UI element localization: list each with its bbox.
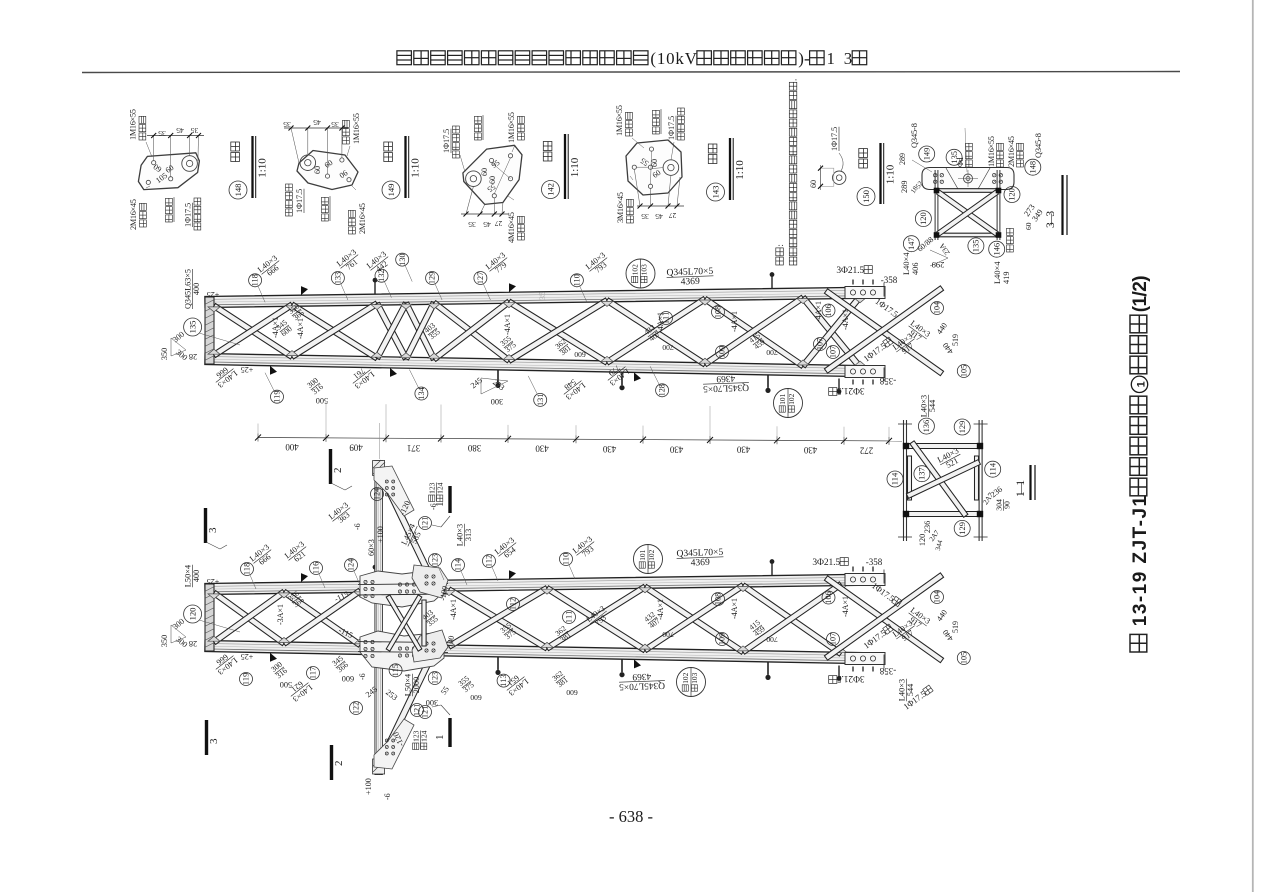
svg-text:500: 500	[316, 396, 328, 405]
svg-text:60: 60	[313, 166, 322, 174]
svg-text:110: 110	[573, 274, 582, 286]
svg-text:L40×4: L40×4	[993, 261, 1002, 284]
svg-text:148: 148	[233, 184, 243, 197]
svg-text:111: 111	[662, 312, 671, 324]
svg-text:1M16×55: 1M16×55	[507, 112, 516, 143]
svg-text:-4A×1: -4A×1	[841, 596, 850, 617]
svg-text:45: 45	[313, 118, 321, 127]
svg-text:1:10: 1:10	[569, 157, 581, 177]
svg-text:127: 127	[476, 272, 485, 284]
svg-text:35: 35	[331, 120, 339, 129]
svg-text:35: 35	[641, 212, 649, 221]
svg-text:149: 149	[922, 148, 931, 161]
svg-text:-358: -358	[879, 666, 896, 676]
svg-text:.: .	[789, 79, 799, 81]
svg-text:149: 149	[386, 184, 396, 197]
svg-text:700: 700	[662, 630, 674, 639]
svg-text:2: 2	[333, 761, 345, 767]
svg-text:129: 129	[958, 421, 967, 434]
svg-text:1M16×55: 1M16×55	[129, 109, 138, 140]
svg-text:600: 600	[574, 350, 586, 359]
svg-text:122: 122	[352, 702, 361, 714]
svg-text:406: 406	[911, 263, 920, 276]
svg-text:299: 299	[932, 260, 945, 270]
svg-text:-4A×1: -4A×1	[730, 311, 739, 332]
svg-text:289: 289	[898, 153, 907, 165]
svg-text:430: 430	[535, 444, 549, 454]
svg-text:27: 27	[495, 219, 503, 228]
svg-text:+25: +25	[241, 365, 254, 374]
svg-text:101: 101	[778, 393, 787, 404]
svg-text:137: 137	[918, 467, 927, 480]
svg-text:45: 45	[176, 126, 184, 135]
svg-text:2M16×45: 2M16×45	[358, 203, 367, 234]
svg-text:430: 430	[602, 444, 616, 454]
svg-text:35: 35	[468, 220, 476, 229]
svg-text:600: 600	[342, 674, 354, 683]
svg-text:313: 313	[464, 529, 473, 541]
svg-text:3: 3	[208, 738, 220, 744]
svg-text:128: 128	[658, 384, 667, 396]
svg-text:409: 409	[349, 443, 363, 453]
svg-text:600: 600	[566, 688, 578, 697]
svg-text:135: 135	[972, 240, 981, 253]
svg-text:3—3: 3—3	[1045, 211, 1057, 228]
svg-text:112: 112	[485, 555, 494, 567]
svg-text:135: 135	[187, 321, 197, 334]
svg-text:142: 142	[545, 183, 555, 196]
svg-text:-358: -358	[879, 376, 896, 386]
svg-text:3Φ21.5: 3Φ21.5	[812, 558, 840, 568]
svg-text:380: 380	[467, 443, 481, 453]
svg-text:L40×4: L40×4	[902, 252, 911, 275]
svg-text:1:10: 1:10	[257, 158, 269, 178]
svg-text:-358: -358	[866, 557, 883, 567]
svg-text:115: 115	[391, 664, 400, 676]
svg-text:146: 146	[992, 243, 1001, 256]
svg-text:3Φ21.5: 3Φ21.5	[837, 673, 865, 683]
svg-text:121: 121	[421, 517, 430, 529]
svg-text:430: 430	[669, 444, 683, 454]
svg-text:120: 120	[918, 534, 927, 546]
svg-text:108: 108	[714, 593, 723, 605]
svg-text:1Φ17.5: 1Φ17.5	[184, 203, 193, 227]
svg-text:Φd: Φd	[956, 157, 965, 167]
svg-text:+100: +100	[364, 778, 373, 795]
svg-text:104: 104	[933, 302, 942, 314]
svg-text:1Φ17.5: 1Φ17.5	[830, 127, 839, 151]
svg-text:1:10: 1:10	[410, 158, 422, 178]
svg-text:2: 2	[332, 468, 344, 474]
svg-text:600: 600	[470, 693, 482, 702]
svg-text:Q345-8: Q345-8	[1034, 133, 1043, 158]
svg-text:-6: -6	[383, 793, 392, 800]
svg-text:- 638 -: - 638 -	[609, 807, 653, 826]
svg-text:2M16×45: 2M16×45	[1007, 136, 1016, 167]
svg-text:700: 700	[662, 343, 674, 352]
svg-text:118: 118	[243, 563, 252, 575]
svg-text:60×3: 60×3	[367, 539, 376, 556]
svg-text:-3A×1: -3A×1	[276, 604, 285, 625]
svg-text:4369: 4369	[690, 557, 710, 569]
svg-text:101: 101	[638, 549, 647, 560]
svg-text:102: 102	[787, 393, 796, 404]
svg-text:544: 544	[928, 400, 937, 412]
svg-text:-4A×1: -4A×1	[503, 314, 512, 335]
svg-text:2M16×45: 2M16×45	[129, 199, 138, 230]
svg-text:1: 1	[1136, 381, 1148, 387]
svg-text:143: 143	[710, 186, 720, 199]
svg-text:700: 700	[766, 635, 778, 644]
svg-text:108: 108	[714, 306, 723, 318]
svg-text:133: 133	[334, 272, 343, 284]
svg-text:4369: 4369	[716, 373, 735, 384]
svg-text:-4A×1: -4A×1	[449, 599, 458, 620]
svg-text:1: 1	[434, 735, 446, 741]
svg-text:150: 150	[861, 190, 871, 203]
svg-text:+25: +25	[241, 652, 254, 661]
svg-text:60: 60	[650, 159, 659, 167]
svg-text:148: 148	[1029, 161, 1038, 174]
svg-text:124: 124	[373, 488, 382, 500]
svg-text:1:10: 1:10	[734, 160, 746, 180]
svg-text:1M16×55: 1M16×55	[615, 105, 624, 136]
svg-text:129: 129	[428, 272, 437, 284]
svg-text:(10kV: (10kV	[650, 49, 697, 68]
svg-text:136: 136	[922, 420, 931, 433]
svg-text:1Φ17.5: 1Φ17.5	[442, 129, 451, 153]
svg-text:-4A×1: -4A×1	[656, 599, 665, 620]
svg-text:+25: +25	[207, 577, 220, 586]
svg-text:430: 430	[736, 445, 750, 455]
svg-text:419: 419	[1002, 272, 1011, 285]
svg-text:106: 106	[824, 591, 833, 603]
svg-text:118: 118	[251, 274, 260, 286]
svg-text:129: 129	[958, 522, 967, 535]
svg-text:300: 300	[491, 397, 503, 406]
svg-text:4M16×45: 4M16×45	[507, 212, 516, 243]
svg-text:35: 35	[158, 129, 166, 138]
svg-text:3Φ21.5: 3Φ21.5	[836, 266, 864, 276]
svg-text:289: 289	[900, 181, 909, 194]
svg-text:120: 120	[919, 212, 928, 225]
svg-text:103: 103	[640, 264, 649, 275]
svg-text:+25: +25	[207, 290, 220, 299]
svg-text:400: 400	[192, 570, 201, 582]
svg-text:109: 109	[718, 633, 727, 645]
svg-text:106: 106	[824, 304, 833, 316]
svg-text:114: 114	[988, 462, 997, 475]
svg-text:-6: -6	[353, 523, 362, 530]
svg-text:1M16×55: 1M16×55	[352, 113, 361, 144]
svg-text:2000: 2000	[412, 677, 421, 693]
svg-text:544: 544	[906, 684, 915, 696]
svg-text:90: 90	[1003, 501, 1012, 509]
svg-text:112: 112	[509, 598, 518, 610]
svg-text:)-: )-	[798, 49, 810, 68]
svg-text:+100: +100	[376, 526, 385, 543]
svg-text:116: 116	[312, 562, 321, 574]
svg-text:1:10: 1:10	[885, 164, 897, 184]
svg-text:104: 104	[933, 591, 942, 603]
svg-text:350: 350	[160, 635, 169, 647]
svg-text:120: 120	[187, 608, 197, 621]
svg-text:119: 119	[242, 673, 251, 685]
svg-text:121: 121	[421, 706, 430, 718]
svg-text:110: 110	[562, 553, 571, 565]
svg-text:107: 107	[816, 338, 825, 350]
svg-text:60: 60	[1024, 222, 1033, 230]
svg-text:-6: -6	[358, 673, 367, 680]
svg-text:350: 350	[160, 348, 169, 360]
svg-text:107: 107	[829, 346, 838, 358]
svg-text:27: 27	[669, 211, 677, 220]
svg-text:4369: 4369	[680, 276, 700, 288]
svg-text:519: 519	[951, 334, 960, 346]
svg-text:500: 500	[280, 680, 292, 689]
svg-text:124: 124	[436, 482, 445, 494]
svg-text:700: 700	[766, 348, 778, 357]
svg-text:60: 60	[809, 180, 818, 188]
svg-text:102: 102	[631, 264, 640, 275]
svg-text:371: 371	[407, 443, 421, 453]
svg-text:1M16×55: 1M16×55	[987, 136, 996, 167]
svg-text:-4A×1: -4A×1	[730, 598, 739, 619]
svg-text:28: 28	[189, 639, 197, 648]
svg-text:1—1: 1—1	[1015, 480, 1027, 497]
svg-text:4369: 4369	[632, 671, 651, 682]
svg-text:45: 45	[483, 220, 491, 229]
svg-text:-4A×1: -4A×1	[814, 301, 823, 322]
svg-text:107: 107	[829, 633, 838, 645]
svg-text:130: 130	[398, 253, 407, 265]
svg-text:134: 134	[417, 387, 426, 399]
svg-text:147: 147	[907, 237, 916, 250]
svg-text:124: 124	[420, 730, 429, 742]
svg-text:114: 114	[454, 559, 463, 571]
svg-text::: :	[775, 244, 785, 247]
svg-text:-358: -358	[881, 275, 898, 285]
svg-text:28: 28	[189, 352, 197, 361]
svg-text:45: 45	[655, 212, 663, 221]
svg-text:1: 1	[434, 502, 446, 508]
svg-text:123: 123	[431, 554, 440, 566]
svg-text:-4A×1: -4A×1	[841, 309, 850, 330]
svg-text:430: 430	[803, 445, 817, 455]
svg-text:103: 103	[690, 672, 699, 683]
svg-text:1Φ17.5: 1Φ17.5	[295, 189, 304, 213]
svg-text:131: 131	[536, 394, 545, 406]
svg-text:60: 60	[480, 168, 489, 176]
svg-text:35: 35	[537, 292, 547, 301]
svg-text:272: 272	[860, 445, 874, 455]
svg-text:105: 105	[959, 365, 968, 377]
svg-text:Q345-8: Q345-8	[910, 123, 919, 148]
svg-text:102: 102	[647, 549, 656, 560]
svg-text:114: 114	[891, 472, 900, 485]
svg-text:3: 3	[207, 527, 219, 533]
svg-text:236: 236	[923, 521, 932, 533]
svg-text:(1/2): (1/2)	[1130, 275, 1151, 312]
svg-text:117: 117	[309, 667, 318, 679]
svg-text:124: 124	[347, 559, 356, 571]
svg-text:519: 519	[951, 621, 960, 633]
svg-text:35: 35	[283, 120, 291, 129]
svg-text:102: 102	[681, 672, 690, 683]
svg-text:119: 119	[273, 391, 282, 403]
svg-text:120: 120	[1008, 188, 1017, 201]
svg-text:1Φ17.5: 1Φ17.5	[667, 116, 676, 140]
svg-text:35: 35	[191, 126, 199, 135]
svg-text:400: 400	[192, 283, 201, 295]
svg-text:3Φ21.5: 3Φ21.5	[837, 385, 865, 395]
svg-text:3M16×45: 3M16×45	[616, 192, 625, 223]
svg-text:111: 111	[565, 611, 574, 623]
svg-text:105: 105	[959, 652, 968, 664]
svg-text:123: 123	[430, 672, 439, 684]
svg-text:109: 109	[718, 346, 727, 358]
svg-text:13-19 ZJT-J1: 13-19 ZJT-J1	[1130, 495, 1151, 626]
svg-text:400: 400	[285, 442, 299, 452]
